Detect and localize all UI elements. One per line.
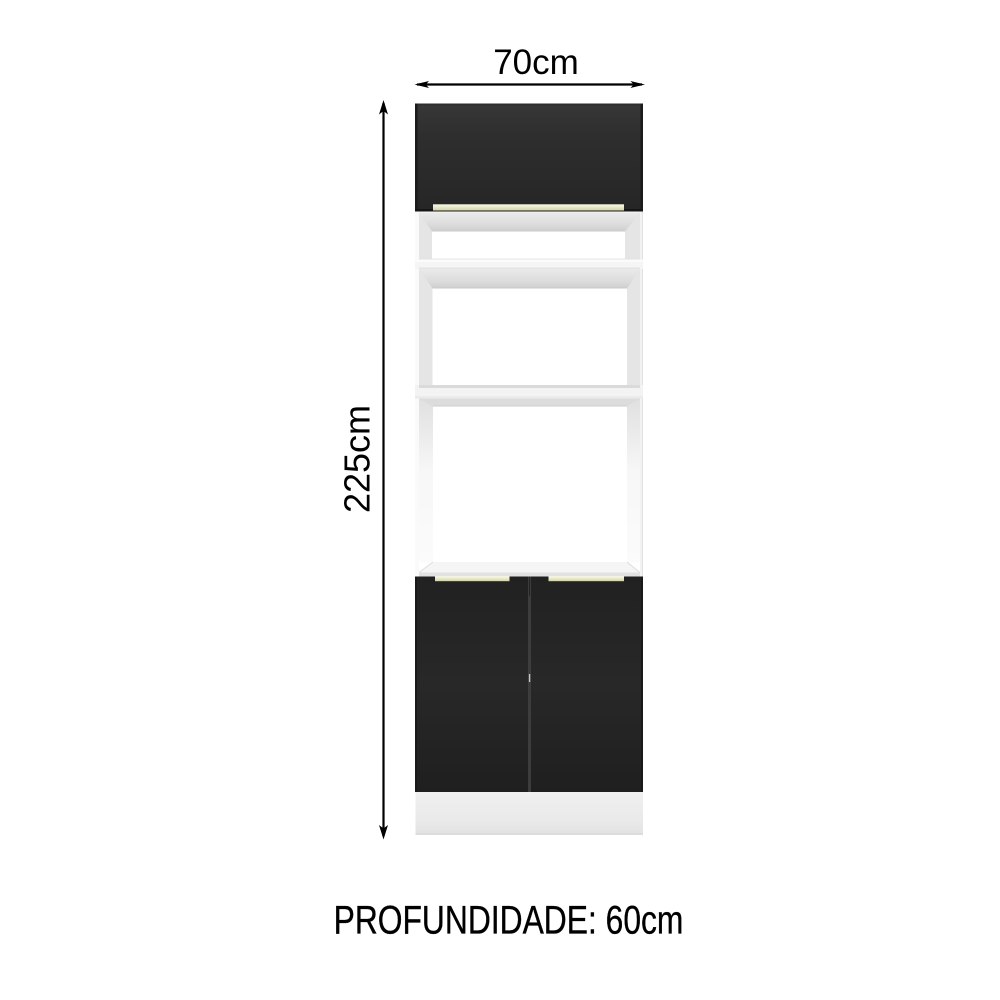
svg-text:225cm: 225cm	[337, 405, 378, 513]
svg-text:70cm: 70cm	[493, 43, 579, 82]
svg-text:PROFUNDIDADE: 60cm: PROFUNDIDADE: 60cm	[334, 897, 684, 942]
